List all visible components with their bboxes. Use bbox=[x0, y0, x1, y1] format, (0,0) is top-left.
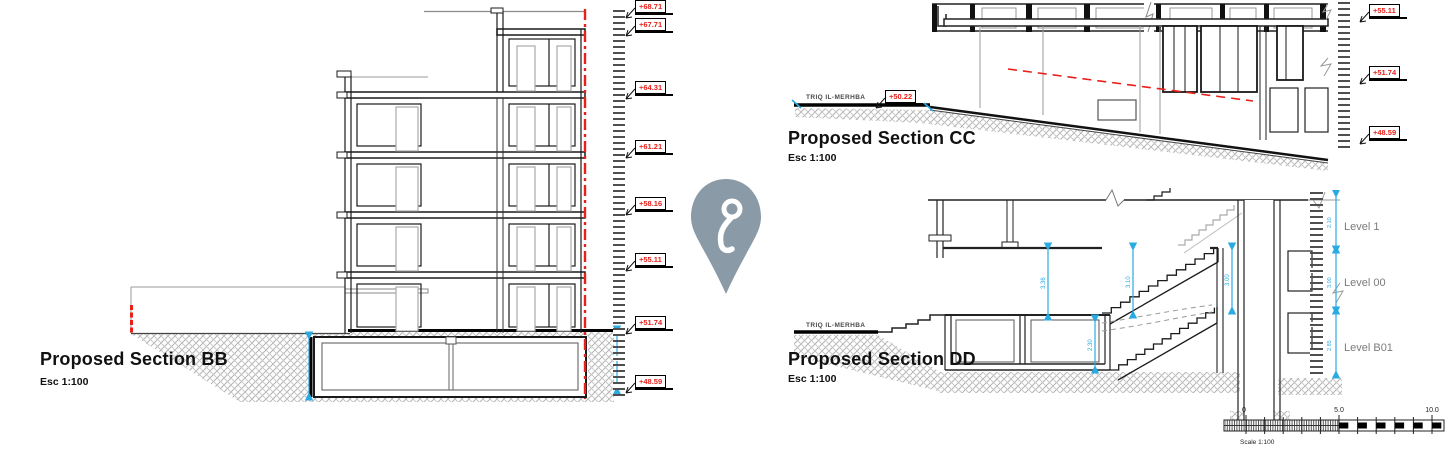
leader-arrow-icon bbox=[1356, 11, 1370, 24]
drawing-sheet: Proposed Section BB Esc 1:100 +68.71 +67… bbox=[0, 0, 1449, 452]
leader-arrow-icon bbox=[622, 204, 636, 217]
ruler-dim-label: 3.00 bbox=[1327, 277, 1333, 288]
elevation-value: +55.11 bbox=[1369, 4, 1400, 17]
section-cc-title: Proposed Section CC bbox=[788, 128, 976, 149]
location-pin-icon[interactable] bbox=[688, 176, 764, 298]
level-label-00: Level 00 bbox=[1344, 277, 1386, 289]
elevation-value: +48.59 bbox=[1369, 126, 1400, 139]
scale-tick-5: 5.0 bbox=[1329, 407, 1349, 414]
ruler-dim-label: 2.10 bbox=[1327, 217, 1333, 228]
leader-arrow-icon bbox=[622, 25, 636, 38]
elevation-tag: +64.31 bbox=[622, 81, 666, 94]
elevation-tag: +61.21 bbox=[622, 140, 666, 153]
leader-arrow-icon bbox=[622, 88, 636, 101]
leader-arrow-icon bbox=[622, 382, 636, 395]
elevation-value: +55.11 bbox=[635, 253, 666, 266]
ruler-dim-label: 2.85 bbox=[1327, 340, 1333, 351]
scale-bar-graphic bbox=[1222, 415, 1448, 437]
elevation-tag: +67.71 bbox=[622, 18, 666, 31]
leader-arrow-icon bbox=[1356, 73, 1370, 86]
elevation-tag: +51.74 bbox=[622, 316, 666, 329]
elevation-tag: +58.16 bbox=[622, 197, 666, 210]
elevation-value: +67.71 bbox=[635, 18, 666, 31]
level-ruler bbox=[1310, 192, 1323, 376]
elevation-tag: +51.74 bbox=[1356, 66, 1400, 79]
elevation-value: +50.22 bbox=[885, 90, 916, 103]
level-label-b01: Level B01 bbox=[1344, 342, 1393, 354]
dim-label: 3.00 bbox=[1225, 274, 1231, 286]
section-bb-drawing bbox=[0, 0, 650, 452]
street-label-dd: TRIQ IL-MERHBA bbox=[806, 322, 865, 329]
section-dd-scale: Esc 1:100 bbox=[788, 373, 836, 385]
dim-label: 3.36 bbox=[1041, 277, 1047, 289]
section-dd-title: Proposed Section DD bbox=[788, 349, 976, 370]
elevation-value: +48.59 bbox=[635, 375, 666, 388]
elevation-tag: +50.22 bbox=[872, 90, 916, 103]
dim-label: 2.30 bbox=[1088, 339, 1094, 351]
elevation-value: +61.21 bbox=[635, 140, 666, 153]
elevation-tag: +68.71 bbox=[622, 0, 666, 13]
leader-arrow-icon bbox=[622, 323, 636, 336]
elevation-value: +51.74 bbox=[1369, 66, 1400, 79]
elevation-value: +51.74 bbox=[635, 316, 666, 329]
elevation-value: +68.71 bbox=[635, 0, 666, 13]
level-label-1: Level 1 bbox=[1344, 221, 1379, 233]
elevation-value: +64.31 bbox=[635, 81, 666, 94]
scale-tick-0: 0 bbox=[1236, 407, 1252, 414]
elevation-tag: +55.11 bbox=[622, 253, 666, 266]
elevation-tag: +48.59 bbox=[1356, 126, 1400, 139]
street-label-cc: TRIQ IL-MERHBA bbox=[806, 94, 865, 101]
section-bb-title: Proposed Section BB bbox=[40, 349, 228, 370]
leader-arrow-icon bbox=[872, 97, 886, 110]
section-cc-scale: Esc 1:100 bbox=[788, 152, 836, 164]
scale-bar-label: Scale 1:100 bbox=[1240, 439, 1274, 446]
leader-arrow-icon bbox=[622, 260, 636, 273]
dim-label: 3.10 bbox=[1126, 276, 1132, 288]
leader-arrow-icon bbox=[1356, 133, 1370, 146]
elevation-tag: +55.11 bbox=[1356, 4, 1400, 17]
scale-bar: 0 5.0 10.0 Scale 1:100 bbox=[1222, 404, 1448, 450]
leader-arrow-icon bbox=[622, 147, 636, 160]
elevation-ruler-right bbox=[1338, 2, 1350, 148]
elevation-tag: +48.59 bbox=[622, 375, 666, 388]
scale-tick-10: 10.0 bbox=[1420, 407, 1444, 414]
section-bb-scale: Esc 1:100 bbox=[40, 376, 88, 388]
elevation-value: +58.16 bbox=[635, 197, 666, 210]
